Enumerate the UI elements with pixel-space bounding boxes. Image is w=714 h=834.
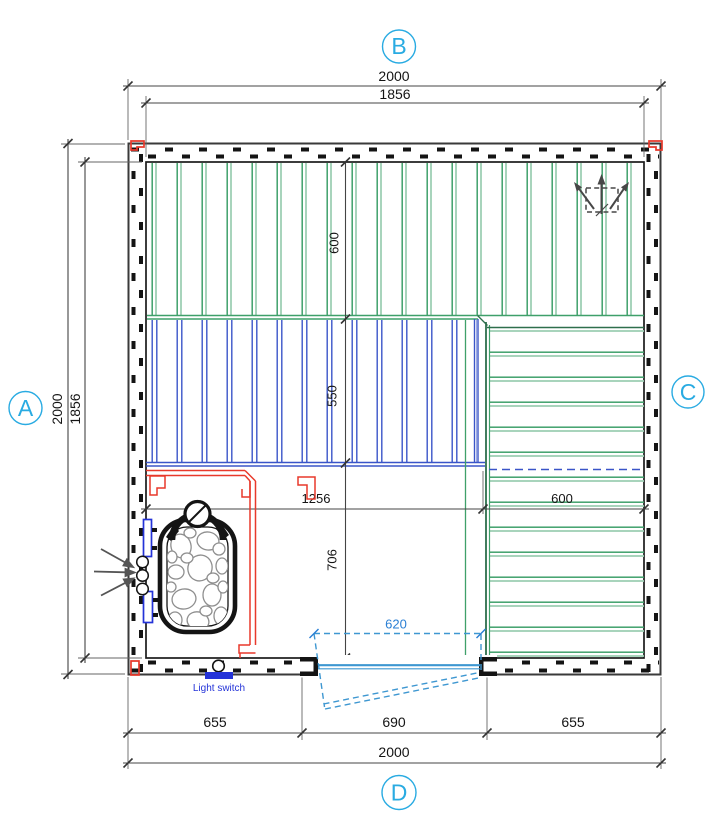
wall-sensor-upper (144, 520, 152, 557)
dim-door-clear: 620 (385, 617, 407, 632)
dim-top-outer: 2000 (378, 68, 409, 84)
dim-bottom-right: 655 (561, 714, 585, 730)
dim-bench-mid-depth: 550 (325, 385, 340, 407)
bench-right (466, 316, 645, 659)
dim-left-outer: 2000 (49, 393, 65, 424)
grid-label-b: B (391, 33, 406, 59)
grid-label-c: C (680, 379, 697, 405)
light-switch-box (205, 672, 233, 679)
dim-bottom-left: 655 (203, 714, 227, 730)
dim-left-inner: 1856 (67, 393, 83, 424)
dim-top-inner: 1856 (379, 86, 410, 102)
vent-hole-1 (137, 556, 149, 568)
dim-bottom-total: 2000 (378, 744, 409, 760)
bench-top (147, 163, 644, 319)
vent-hole-3 (137, 583, 149, 595)
floor-plan-canvas: 2000 1856 2000 1856 600 550 706 1256 600… (0, 0, 714, 834)
bench-middle (146, 319, 485, 466)
light-switch-label: Light switch (193, 683, 245, 694)
dim-bench-right-depth: 600 (551, 491, 573, 506)
grid-label-a: A (18, 395, 34, 421)
dim-floor-width: 1256 (302, 491, 331, 506)
dim-floor-height: 706 (325, 549, 340, 571)
wall-pass-through (213, 660, 225, 672)
wall-sensor-lower (144, 592, 153, 623)
grid-label-d: D (391, 780, 408, 806)
vent-hole-2 (137, 570, 149, 582)
dim-bench-top-depth: 600 (327, 232, 342, 254)
dim-bottom-mid: 690 (382, 714, 406, 730)
floor-plan-drawing: 2000 1856 2000 1856 600 550 706 1256 600… (0, 0, 714, 834)
